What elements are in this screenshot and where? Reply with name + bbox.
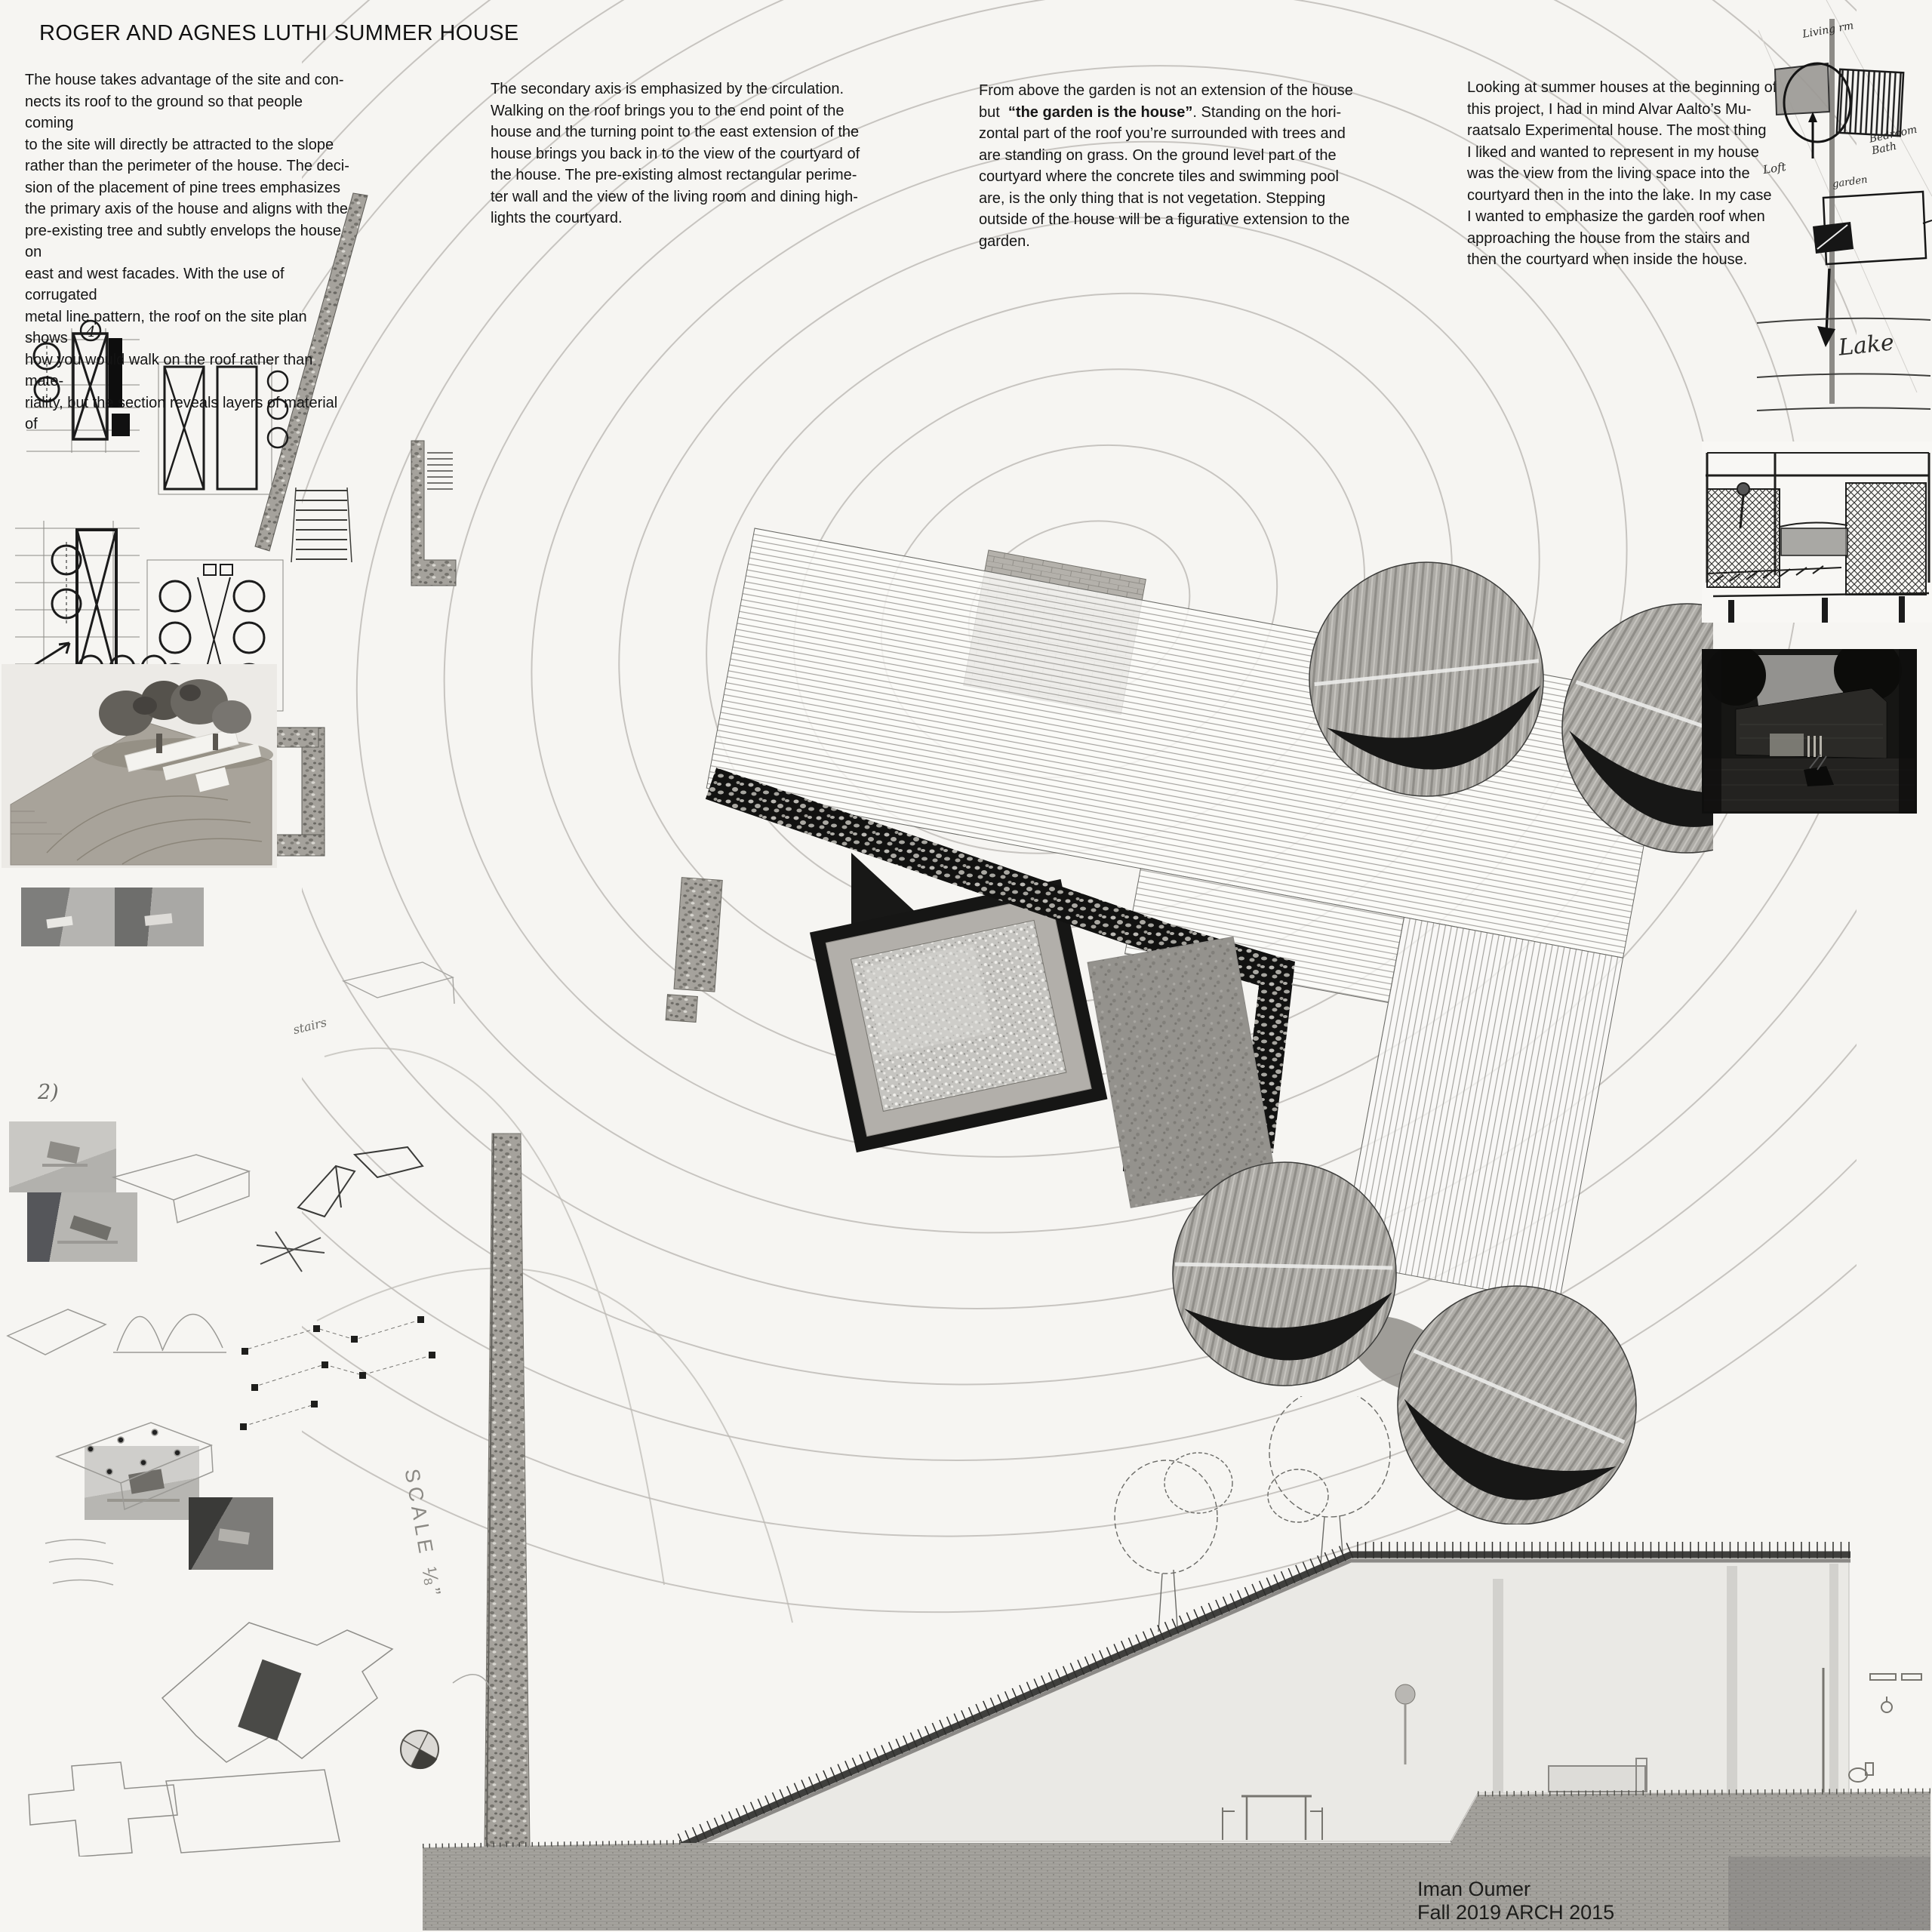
col3-line2: but “the garden is the house”. Standing … (979, 102, 1469, 124)
site-plan (641, 423, 1713, 1524)
text-column-1: The house takes advantage of the site an… (25, 69, 349, 435)
sketch-note: 2) (38, 1081, 59, 1104)
author-credit: Iman Oumer Fall 2019 ARCH 2015 (1417, 1878, 1614, 1924)
page-title: ROGER AND AGNES LUTHI SUMMER HOUSE (39, 21, 519, 46)
text-column-2: The secondary axis is emphasized by the … (491, 78, 958, 229)
concept-diagram-sketch (1751, 0, 1932, 430)
building-section (423, 1396, 1932, 1932)
column-grid-sketch (240, 1316, 435, 1430)
reference-photo-dark (1702, 649, 1917, 814)
process-sketches (0, 936, 498, 1857)
col3-rest: zontal part of the roof you’re surrounde… (979, 123, 1469, 252)
presentation-board: 4 (0, 0, 1932, 1932)
model-photo-large (2, 664, 277, 868)
stone-wall-fragment (666, 877, 722, 1023)
north-compass (396, 1727, 445, 1775)
plan-stairs (291, 488, 352, 562)
text-column-3: From above the garden is not an extensio… (979, 80, 1469, 252)
interior-perspective-sketch (1702, 441, 1932, 623)
col3-line1: From above the garden is not an extensio… (979, 80, 1469, 102)
